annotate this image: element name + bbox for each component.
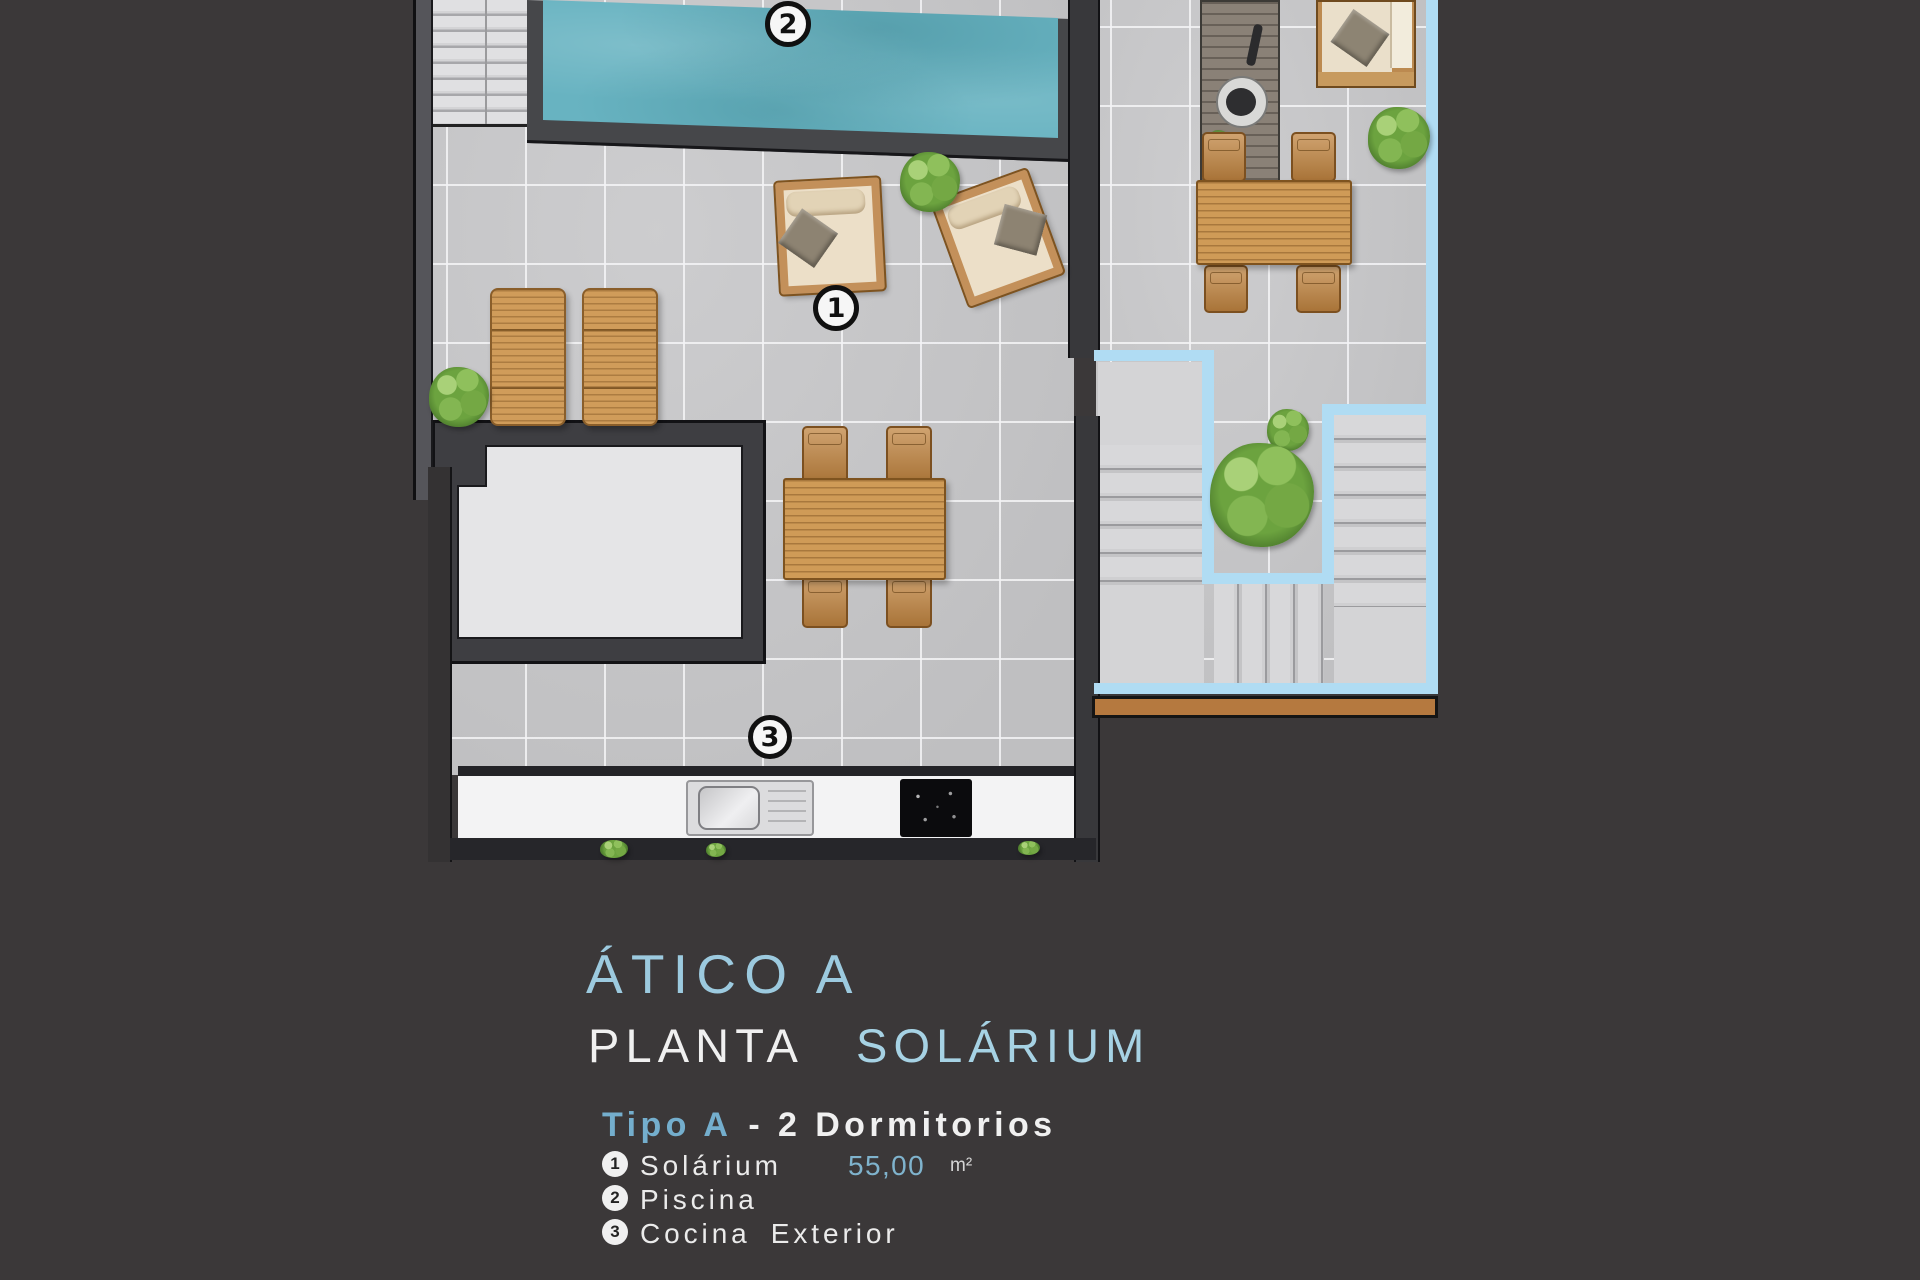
plant-by-loungers: [429, 367, 489, 427]
bed-plant-large: [1210, 443, 1314, 547]
boundary-line-left: [1202, 350, 1214, 584]
dining-chair-top-right: [886, 426, 932, 484]
cocina-marker: 3: [748, 715, 792, 759]
plan-subtitle: PLANTASOLÁRIUM: [588, 1018, 1150, 1073]
floorplan-page: 1 2 3 ÁTICO A PLANTASOLÁRIUM Tipo A- 2 D…: [0, 0, 1920, 1280]
neighbour-plant: [1368, 107, 1430, 169]
top-left-stairs-divider: [485, 0, 487, 124]
sofa-front-rail: [1318, 72, 1414, 86]
bulkhead-room-interior: [457, 445, 743, 639]
kitchen-wall-plant-2: [706, 843, 726, 857]
sofa-back-cushion: [1390, 2, 1412, 68]
piscina-marker-number: 2: [779, 9, 798, 40]
piscina-marker: 2: [765, 1, 811, 47]
plant-by-armchairs: [900, 152, 960, 212]
kitchen-wall-plant-1: [600, 840, 628, 858]
unit-type-line: Tipo A- 2 Dormitorios: [602, 1106, 1057, 1145]
left-exterior-wall: [413, 0, 433, 500]
bbq-kettle-lid: [1226, 88, 1256, 116]
legend-area-value: 55,00: [848, 1150, 925, 1182]
boundary-line-top: [1094, 350, 1214, 361]
plan-subtitle-accent: SOLÁRIUM: [856, 1019, 1150, 1072]
plan-subtitle-primary: PLANTA: [588, 1019, 804, 1072]
bulkhead-room-notch: [457, 445, 487, 487]
boundary-line-bed-bottom: [1202, 573, 1334, 584]
boundary-line-right: [1426, 0, 1438, 694]
plan-title: ÁTICO A: [586, 942, 861, 1006]
kitchen-cooktop: [900, 779, 972, 837]
boundary-line-bottom: [1094, 683, 1438, 694]
bbq-utensil-icon: [1246, 24, 1264, 67]
floor-plan: 1 2 3: [0, 0, 1920, 880]
unit-type-accent: Tipo A: [602, 1106, 732, 1144]
stairs-flight-1: [1098, 362, 1204, 684]
armchair-2-pillow: [994, 204, 1047, 256]
legend-label-piscina: Piscina: [640, 1184, 758, 1216]
caption-block: ÁTICO A PLANTASOLÁRIUM Tipo A- 2 Dormito…: [0, 900, 1920, 1280]
legend-bullet-1: 1: [602, 1151, 628, 1177]
stairs-flight-1-treads: [1098, 445, 1204, 585]
dining-table: [783, 478, 946, 580]
boundary-line-bed-right: [1322, 404, 1334, 584]
legend-row-solarium: 1 Solárium 55,00 m²: [602, 1150, 1102, 1180]
armchair-1: [775, 177, 885, 294]
sink-basin-icon: [698, 786, 760, 830]
party-wall-lower: [1074, 416, 1100, 862]
sink-drainer-lines: [768, 790, 806, 826]
cocina-marker-number: 3: [761, 722, 780, 753]
legend-bullet-2: 2: [602, 1185, 628, 1211]
sun-lounger-1: [490, 288, 566, 426]
left-exterior-wall-lower: [428, 467, 452, 862]
kitchen-counter-back-edge: [458, 766, 1074, 776]
neighbour-stairs: [1334, 415, 1426, 684]
stairs-flight-2: [1214, 584, 1324, 684]
solarium-marker: 1: [813, 285, 859, 331]
dining-chair-bottom-right: [886, 574, 932, 628]
boundary-line-stairs-top: [1322, 404, 1437, 415]
bottom-exterior-wall: [450, 838, 1096, 860]
sun-lounger-2: [582, 288, 658, 426]
neighbour-chair-top-right: [1291, 132, 1336, 182]
legend-label-solarium: Solárium: [640, 1150, 782, 1182]
kitchen-sink-unit: [686, 780, 814, 836]
top-left-stairs: [429, 0, 527, 127]
dining-chair-top-left: [802, 426, 848, 484]
neighbour-dining-table: [1196, 180, 1352, 265]
solarium-marker-number: 1: [827, 293, 846, 324]
dining-chair-bottom-left: [802, 574, 848, 628]
unit-type-rest: - 2 Dormitorios: [748, 1106, 1056, 1144]
party-wall-upper: [1068, 0, 1100, 358]
legend-label-cocina: Cocina Exterior: [640, 1218, 899, 1250]
neighbour-stairs-treads: [1334, 415, 1426, 607]
wood-edge-strip: [1092, 696, 1438, 718]
legend-row-cocina: 3 Cocina Exterior: [602, 1218, 1102, 1248]
neighbour-chair-top-left: [1202, 132, 1246, 182]
neighbour-chair-bottom-right: [1296, 265, 1341, 313]
neighbour-sofa: [1316, 0, 1416, 88]
bbq-kettle-icon: [1216, 76, 1268, 128]
armchair-1-pillow: [778, 208, 838, 268]
legend-row-piscina: 2 Piscina: [602, 1184, 1102, 1214]
kitchen-wall-plant-3: [1018, 841, 1040, 855]
legend-bullet-3: 3: [602, 1219, 628, 1245]
legend-area-unit: m²: [950, 1155, 972, 1177]
stairs-flight-2-treads: [1214, 584, 1324, 684]
neighbour-chair-bottom-left: [1204, 265, 1248, 313]
